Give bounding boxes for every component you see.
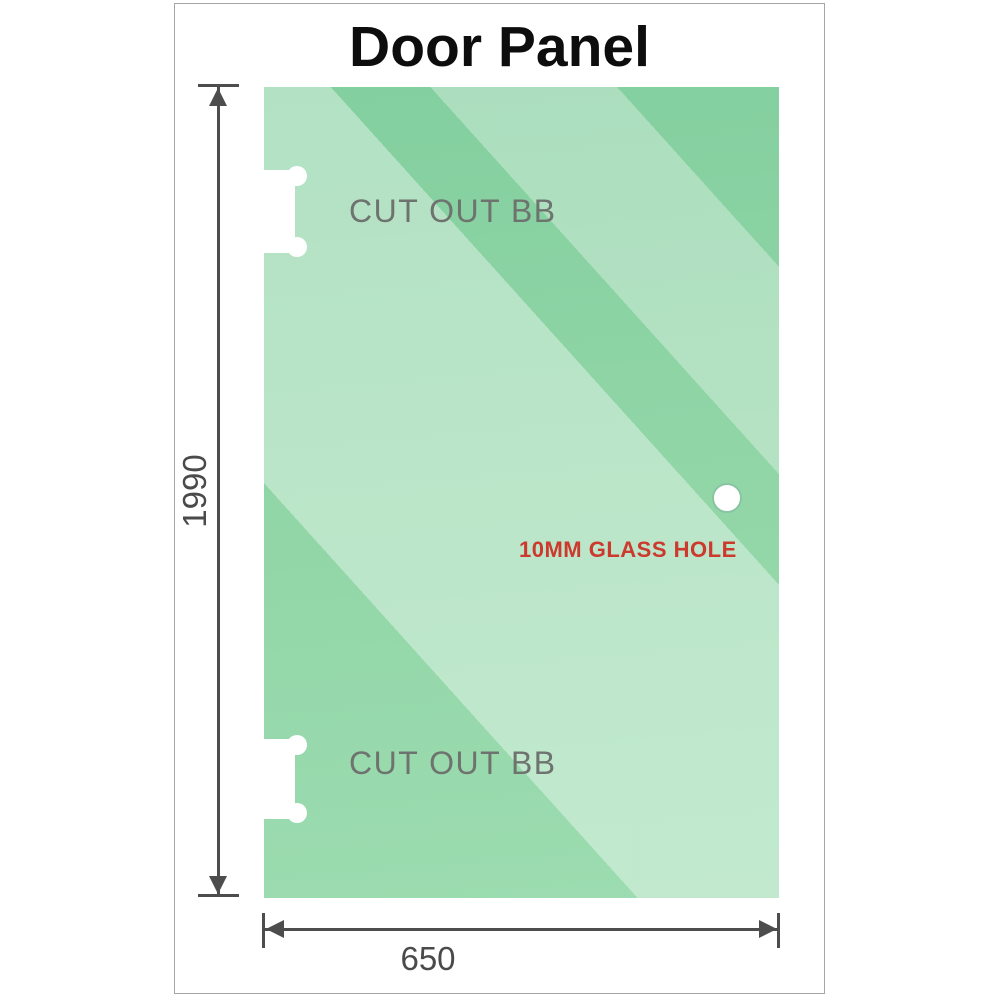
glass-panel: CUT OUT BB CUT OUT BB 10MM GLASS HOLE	[264, 87, 779, 898]
arrow-left-icon	[266, 920, 284, 938]
cutout-label-bottom: CUT OUT BB	[349, 745, 557, 782]
arrow-up-icon	[209, 88, 227, 106]
page-title: Door Panel	[175, 16, 824, 78]
cutout-label-top: CUT OUT BB	[349, 193, 557, 230]
arrow-down-icon	[209, 876, 227, 894]
width-dimension-line	[264, 928, 779, 931]
dimension-tick-bottom	[198, 894, 239, 897]
dimension-tick-right	[777, 913, 780, 948]
glass-hole-label: 10MM GLASS HOLE	[519, 537, 737, 563]
diagram-frame: Door Panel CUT OUT BB CUT OUT BB 10MM GL…	[174, 3, 825, 994]
height-dimension-label: 1990	[160, 453, 230, 529]
arrow-right-icon	[759, 920, 777, 938]
width-dimension-label: 650	[378, 940, 478, 978]
hinge-cutout-top-icon	[264, 170, 295, 253]
hinge-cutout-bottom-icon	[264, 739, 295, 819]
glass-hole-icon	[712, 483, 742, 513]
diagram-canvas: Door Panel CUT OUT BB CUT OUT BB 10MM GL…	[0, 0, 1000, 1000]
